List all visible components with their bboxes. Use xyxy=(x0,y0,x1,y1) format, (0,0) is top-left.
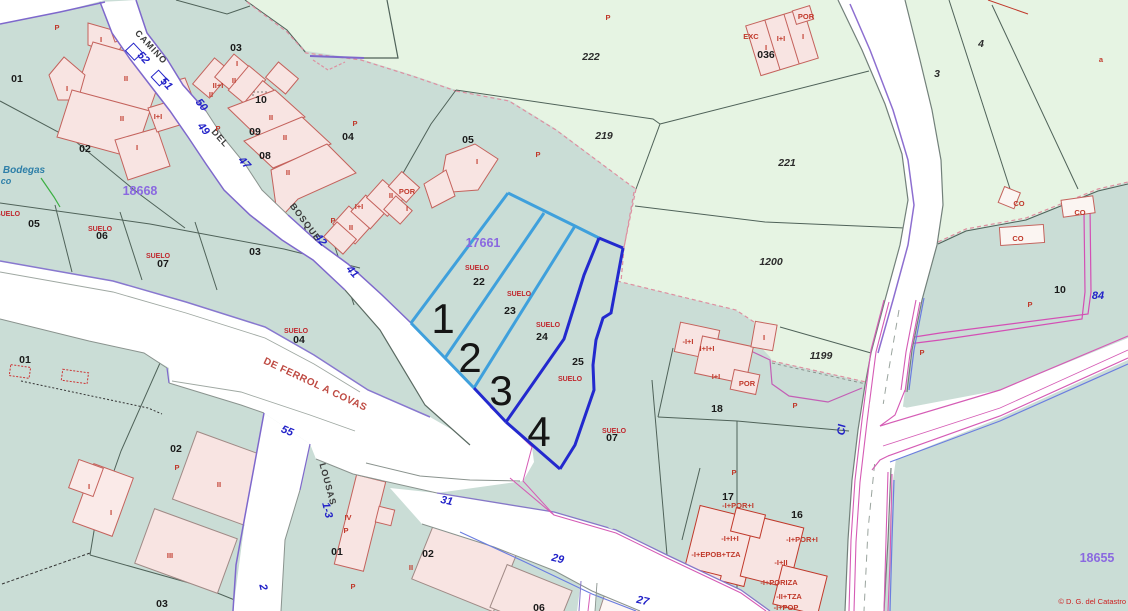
svg-text:10: 10 xyxy=(1054,284,1066,296)
svg-text:P: P xyxy=(792,401,797,410)
svg-text:-I+II: -I+II xyxy=(774,558,787,567)
svg-text:4: 4 xyxy=(977,38,984,50)
svg-text:02: 02 xyxy=(79,143,91,155)
svg-text:P: P xyxy=(343,526,348,535)
svg-text:P: P xyxy=(215,124,220,133)
svg-text:2: 2 xyxy=(458,334,481,381)
svg-text:II: II xyxy=(232,76,236,85)
svg-text:1200: 1200 xyxy=(759,256,783,268)
svg-text:-I+POR+I: -I+POR+I xyxy=(722,501,754,510)
svg-text:I+I: I+I xyxy=(712,372,721,381)
svg-text:P: P xyxy=(330,216,335,225)
svg-text:I: I xyxy=(66,84,68,93)
svg-text:3: 3 xyxy=(489,367,512,414)
svg-text:I+I: I+I xyxy=(355,202,364,211)
svg-text:II: II xyxy=(269,113,273,122)
svg-text:P: P xyxy=(731,468,736,477)
svg-text:18: 18 xyxy=(711,403,723,415)
svg-text:CO: CO xyxy=(1012,234,1023,243)
svg-text:P: P xyxy=(352,119,357,128)
svg-text:05: 05 xyxy=(28,218,40,230)
svg-text:I+I: I+I xyxy=(154,112,163,121)
svg-text:31: 31 xyxy=(439,494,453,508)
svg-text:III: III xyxy=(167,551,173,560)
svg-text:10: 10 xyxy=(255,94,267,106)
svg-text:P: P xyxy=(535,150,540,159)
svg-text:I: I xyxy=(236,59,238,68)
svg-text:P: P xyxy=(174,463,179,472)
svg-text:3: 3 xyxy=(934,68,940,80)
svg-text:16: 16 xyxy=(791,509,803,521)
svg-text:CO: CO xyxy=(1074,208,1085,217)
svg-text:24: 24 xyxy=(536,331,548,343)
svg-text:II: II xyxy=(217,480,221,489)
svg-text:1199: 1199 xyxy=(810,350,833,362)
svg-text:co: co xyxy=(1,176,12,186)
svg-text:-I+PORIZA: -I+PORIZA xyxy=(760,578,798,587)
svg-text:SUELO: SUELO xyxy=(558,376,583,383)
svg-text:II: II xyxy=(409,563,413,572)
svg-text:SUELO: SUELO xyxy=(507,291,532,298)
svg-text:P: P xyxy=(605,13,610,22)
svg-text:4: 4 xyxy=(527,408,550,455)
svg-text:I: I xyxy=(802,32,804,41)
svg-text:P: P xyxy=(1027,300,1032,309)
svg-text:II: II xyxy=(124,74,128,83)
svg-text:SUELO: SUELO xyxy=(88,226,113,233)
svg-text:P: P xyxy=(54,23,59,32)
svg-text:Bodegas: Bodegas xyxy=(3,165,46,176)
svg-text:SUELO: SUELO xyxy=(146,253,171,260)
svg-text:II: II xyxy=(120,114,124,123)
svg-text:CO: CO xyxy=(1013,199,1024,208)
svg-text:II: II xyxy=(349,223,353,232)
svg-text:23: 23 xyxy=(504,305,516,317)
svg-text:219: 219 xyxy=(594,130,613,142)
svg-text:SUELO: SUELO xyxy=(0,211,21,218)
svg-text:I: I xyxy=(406,204,408,213)
svg-text:EXC: EXC xyxy=(743,32,759,41)
svg-text:-I+I+I: -I+I+I xyxy=(721,534,739,543)
svg-text:02: 02 xyxy=(422,548,434,560)
svg-text:84: 84 xyxy=(1092,290,1104,302)
svg-text:18668: 18668 xyxy=(123,184,158,198)
svg-text:CI: CI xyxy=(836,423,849,436)
svg-text:09: 09 xyxy=(249,126,261,138)
svg-text:POR: POR xyxy=(739,379,756,388)
svg-text:-I+EPOB+TZA: -I+EPOB+TZA xyxy=(691,550,741,559)
svg-text:04: 04 xyxy=(293,334,305,346)
svg-text:-I+POR+I: -I+POR+I xyxy=(786,535,818,544)
svg-text:03: 03 xyxy=(156,598,168,610)
svg-text:-I+I: -I+I xyxy=(682,337,693,346)
svg-text:II: II xyxy=(286,168,290,177)
svg-text:I: I xyxy=(476,157,478,166)
svg-text:1: 1 xyxy=(431,295,454,342)
svg-text:P: P xyxy=(350,582,355,591)
svg-text:08: 08 xyxy=(259,150,271,162)
svg-text:01: 01 xyxy=(19,354,31,366)
svg-text:I: I xyxy=(763,333,765,342)
svg-text:I: I xyxy=(88,482,90,491)
svg-text:II: II xyxy=(389,191,393,200)
svg-text:I+I+I: I+I+I xyxy=(699,344,714,353)
svg-text:IV: IV xyxy=(344,513,351,522)
svg-text:18655: 18655 xyxy=(1080,551,1115,565)
svg-text:01: 01 xyxy=(11,73,23,85)
svg-text:SUELO: SUELO xyxy=(284,328,309,335)
svg-text:I: I xyxy=(110,508,112,517)
svg-text:I+I: I+I xyxy=(777,34,786,43)
svg-text:17661: 17661 xyxy=(466,236,501,250)
svg-text:SUELO: SUELO xyxy=(465,265,490,272)
svg-text:SUELO: SUELO xyxy=(536,322,561,329)
svg-text:II: II xyxy=(209,90,213,99)
svg-text:SUELO: SUELO xyxy=(602,428,627,435)
svg-text:22: 22 xyxy=(473,276,485,288)
svg-text:II: II xyxy=(283,133,287,142)
svg-text:-II+TZA: -II+TZA xyxy=(776,592,802,601)
svg-text:POR: POR xyxy=(798,12,815,21)
svg-text:05: 05 xyxy=(462,134,474,146)
svg-text:P: P xyxy=(919,348,924,357)
svg-text:03: 03 xyxy=(249,246,261,258)
svg-text:221: 221 xyxy=(777,157,796,169)
svg-text:06: 06 xyxy=(533,602,545,611)
svg-text:01: 01 xyxy=(331,546,343,558)
svg-text:I: I xyxy=(765,43,767,52)
svg-text:II+I: II+I xyxy=(213,81,224,90)
svg-text:© D. G. del Catastro: © D. G. del Catastro xyxy=(1058,597,1126,606)
svg-text:222: 222 xyxy=(581,51,600,63)
svg-text:POR: POR xyxy=(399,187,416,196)
svg-text:-I+POP: -I+POP xyxy=(774,603,799,611)
svg-text:03: 03 xyxy=(230,42,242,54)
svg-text:I: I xyxy=(100,35,102,44)
svg-text:25: 25 xyxy=(572,356,584,368)
svg-text:02: 02 xyxy=(170,443,182,455)
svg-text:I: I xyxy=(136,143,138,152)
svg-text:04: 04 xyxy=(342,131,354,143)
